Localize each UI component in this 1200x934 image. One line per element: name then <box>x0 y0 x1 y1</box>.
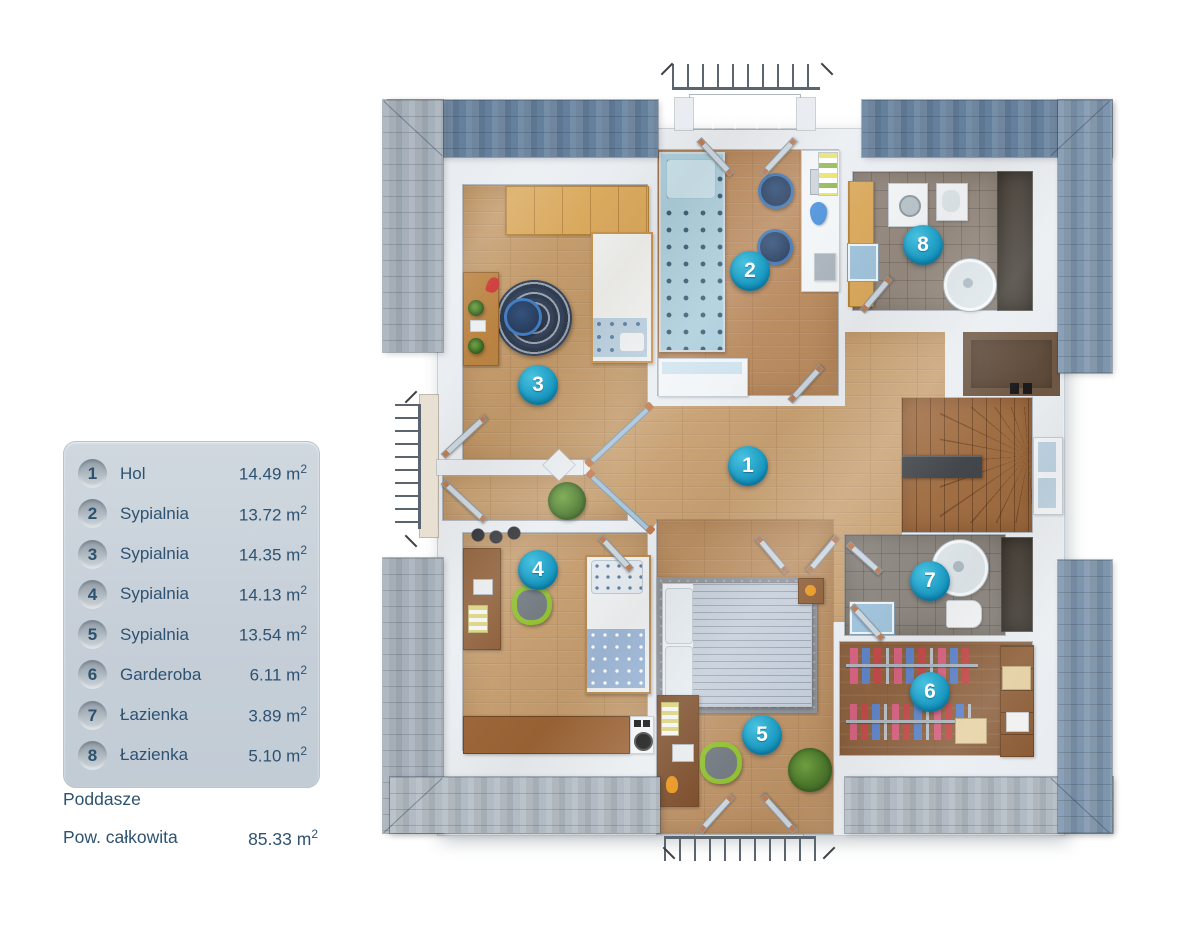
closet-shelves <box>1000 645 1034 757</box>
room-label: Sypialnia <box>120 504 189 524</box>
room-area: 14.49 m2 <box>239 462 307 485</box>
shower-drain <box>963 278 973 288</box>
floor-grille <box>1023 383 1032 394</box>
shelf-unit <box>818 152 838 196</box>
total-area-value: 85.33 m2 <box>248 827 318 850</box>
lamp <box>805 585 816 596</box>
room-area: 6.11 m2 <box>250 663 307 686</box>
dumbbells <box>468 525 526 545</box>
slipper <box>666 776 678 793</box>
desk <box>463 548 501 650</box>
floor-name: Poddasze <box>63 789 141 810</box>
total-area-label: Pow. całkowita <box>63 827 178 850</box>
chair <box>504 298 542 336</box>
legend-number-badge: 1 <box>78 459 107 488</box>
room-area: 13.54 m2 <box>239 623 307 646</box>
floor-plan-page: 1 Hol 14.49 m2 2 Sypialnia 13.72 m2 3 Sy… <box>0 0 1200 934</box>
legend-number-badge: 3 <box>78 540 107 569</box>
roof-bottom-left <box>390 777 660 833</box>
storage-box <box>1006 712 1029 732</box>
chair <box>700 742 742 784</box>
papers <box>470 320 486 332</box>
stove-burner <box>634 732 653 751</box>
room-badge-sypialnia-5: 5 <box>742 715 782 755</box>
balcony-top-platform <box>690 95 800 129</box>
books-stack <box>468 605 488 633</box>
clothes-rack <box>850 648 974 684</box>
plant <box>468 338 484 354</box>
rack-rail <box>846 664 978 667</box>
room-badge-sypialnia-4: 4 <box>518 550 558 590</box>
room-area: 14.35 m2 <box>239 543 307 566</box>
pillow <box>666 159 716 199</box>
dimension-tick <box>405 391 418 404</box>
stove <box>630 716 654 754</box>
pillows <box>665 588 693 644</box>
legend-row-sypialnia-4: 4 Sypialnia 14.13 m2 <box>64 580 319 609</box>
stair-railing <box>902 455 982 478</box>
chair <box>758 173 794 209</box>
plant <box>788 748 832 792</box>
storage-box <box>1002 666 1031 690</box>
shower <box>944 259 996 311</box>
legend-row-sypialnia-5: 5 Sypialnia 13.54 m2 <box>64 620 319 649</box>
floor-plan: 1 2 3 4 5 6 7 8 <box>380 55 1170 915</box>
dresser-top <box>662 362 742 374</box>
floor-grille <box>1010 383 1019 394</box>
duvet <box>587 629 645 688</box>
balcony-top-railing <box>672 64 820 90</box>
room-badge-hol: 1 <box>728 446 768 486</box>
room-label: Hol <box>120 464 146 484</box>
room-badge-lazienka-8: 8 <box>903 225 943 265</box>
dimension-tick <box>405 535 418 548</box>
nightstand <box>798 578 824 604</box>
legend-number-badge: 6 <box>78 660 107 689</box>
legend-number-badge: 8 <box>78 741 107 770</box>
room-area: 5.10 m2 <box>248 744 307 767</box>
cabinet <box>814 253 836 281</box>
room-label: Łazienka <box>120 705 188 725</box>
stove-control <box>643 720 650 727</box>
legend-row-lazienka-8: 8 Łazienka 5.10 m2 <box>64 741 319 770</box>
laptop <box>473 579 493 595</box>
legend-number-badge: 5 <box>78 620 107 649</box>
wardrobe <box>505 186 649 235</box>
legend-row-sypialnia-2: 2 Sypialnia 13.72 m2 <box>64 499 319 528</box>
toilet <box>946 600 982 628</box>
room-badge-sypialnia-2: 2 <box>730 251 770 291</box>
room-label: Sypialnia <box>120 544 189 564</box>
attic-void-top <box>998 172 1032 310</box>
balcony-top-side-wall <box>797 98 815 130</box>
bed <box>591 232 653 363</box>
window-glass <box>1038 478 1056 508</box>
laptop <box>672 744 694 762</box>
desk <box>657 695 699 807</box>
books-stack <box>661 702 679 736</box>
shower-head <box>953 561 964 572</box>
dimension-tick <box>821 63 834 76</box>
striped-duvet <box>693 584 811 706</box>
sideboard <box>463 716 630 754</box>
balcony-left-floor <box>420 395 438 537</box>
pillows <box>665 646 693 702</box>
legend-row-sypialnia-3: 3 Sypialnia 14.35 m2 <box>64 540 319 569</box>
dresser <box>658 358 748 397</box>
room-label: Łazienka <box>120 745 188 765</box>
pillow <box>619 332 645 352</box>
room-label: Garderoba <box>120 665 201 685</box>
bed <box>585 555 651 694</box>
room-label: Sypialnia <box>120 584 189 604</box>
plant <box>468 300 484 316</box>
roof-left-upper <box>383 100 443 352</box>
legend-row-hol: 1 Hol 14.49 m2 <box>64 459 319 488</box>
washer-drum <box>899 195 921 217</box>
plant <box>548 482 586 520</box>
bed <box>659 152 725 352</box>
pillow <box>591 560 643 594</box>
room-badge-sypialnia-3: 3 <box>518 365 558 405</box>
double-bed <box>662 583 812 707</box>
washing-machine <box>888 183 928 227</box>
window-glass <box>1038 442 1056 472</box>
room-label: Sypialnia <box>120 625 189 645</box>
balcony-left-railing <box>395 404 421 529</box>
sink <box>936 183 968 221</box>
legend-row-garderoba: 6 Garderoba 6.11 m2 <box>64 660 319 689</box>
sink-basin <box>942 190 960 212</box>
room-area: 14.13 m2 <box>239 583 307 606</box>
total-area-row: Pow. całkowita 85.33 m2 <box>63 827 318 850</box>
stove-control <box>634 720 641 727</box>
chair <box>512 585 552 625</box>
room-area: 13.72 m2 <box>239 503 307 526</box>
bathroom-sink-unit <box>848 244 878 281</box>
room-badge-lazienka-7: 7 <box>910 561 950 601</box>
room-area: 3.89 m2 <box>248 704 307 727</box>
legend-row-lazienka-7: 7 Łazienka 3.89 m2 <box>64 701 319 730</box>
stair-window-bay <box>1033 437 1063 515</box>
legend-number-badge: 2 <box>78 499 107 528</box>
attic-void-bottom <box>1002 538 1032 631</box>
dimension-tick <box>823 847 836 860</box>
balcony-bottom-railing <box>664 836 816 861</box>
legend-number-badge: 7 <box>78 701 107 730</box>
balcony-top-side-wall <box>675 98 693 130</box>
room-legend-panel: 1 Hol 14.49 m2 2 Sypialnia 13.72 m2 3 Sy… <box>63 441 320 788</box>
room-badge-garderoba: 6 <box>910 672 950 712</box>
legend-number-badge: 4 <box>78 580 107 609</box>
bench <box>955 718 987 744</box>
